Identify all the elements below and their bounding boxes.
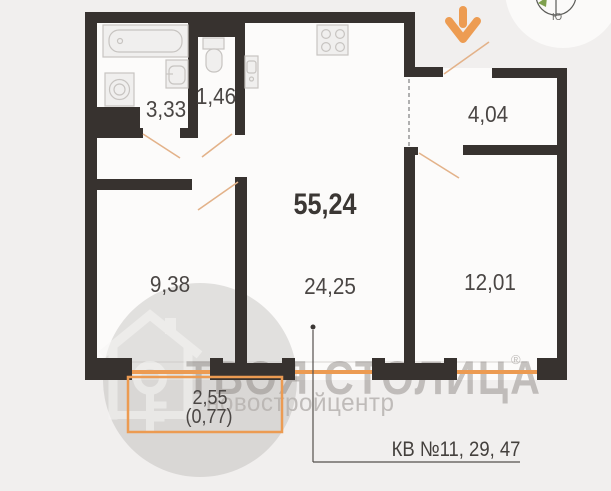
toilet-icon — [203, 38, 224, 72]
watermark-registered-mark: ® — [511, 352, 521, 367]
floor-plan-page: ТВОЯ СТОЛИЦА ® новостройцентр — [0, 0, 611, 491]
compass-south-label: Ю — [552, 12, 562, 23]
room-area-label-room-1: 9,38 — [150, 271, 190, 297]
total-area-label: 55,24 — [293, 187, 357, 221]
room-area-label-toilet: 1,46 — [196, 83, 236, 109]
sink-icon — [166, 60, 188, 88]
washing-machine-icon — [105, 73, 134, 106]
room-area-label-room-2: 12,01 — [464, 269, 516, 295]
kitchen-sink-icon — [245, 56, 258, 88]
stove-icon — [317, 25, 348, 55]
windows — [132, 370, 537, 374]
bathtub-icon — [103, 25, 188, 57]
room-area-label-bathroom: 3,33 — [146, 96, 186, 122]
room-area-label-hallway: 4,04 — [468, 101, 508, 127]
room-area-label-kitchen-living: 24,25 — [304, 273, 356, 299]
apartment-numbers-label: КВ №11, 29, 47 — [392, 438, 521, 461]
floor-plan-svg: ТВОЯ СТОЛИЦА ® новостройцентр — [0, 0, 611, 491]
watermark-subtitle: новостройцентр — [206, 390, 394, 417]
balcony-reduced-area-label: (0,77) — [185, 406, 232, 428]
